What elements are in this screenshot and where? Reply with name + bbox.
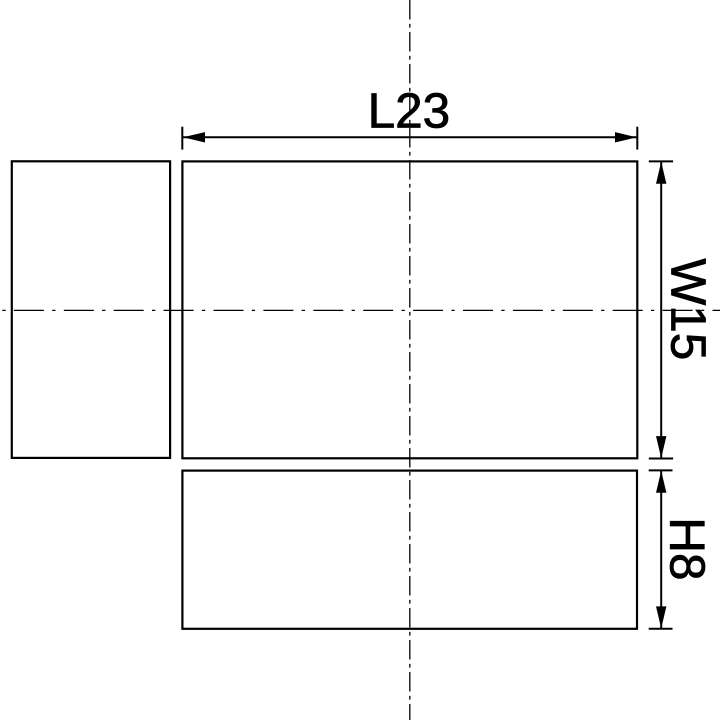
svg-text:W15: W15 <box>661 259 716 361</box>
svg-text:L23: L23 <box>368 84 451 139</box>
svg-text:H8: H8 <box>660 517 715 580</box>
